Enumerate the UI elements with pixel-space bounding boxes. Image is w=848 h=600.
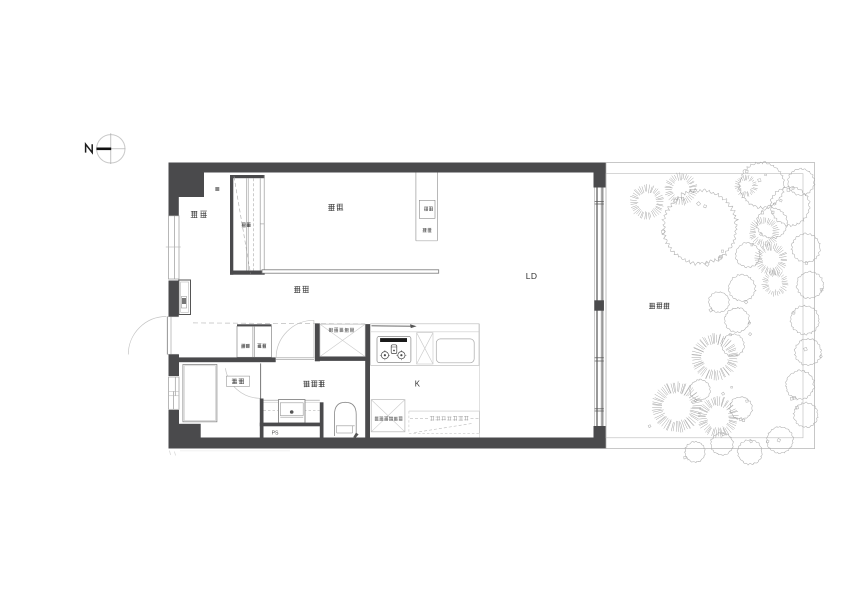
svg-text:K: K	[415, 380, 421, 389]
svg-text:PS: PS	[272, 430, 279, 436]
svg-text:LD: LD	[526, 271, 537, 281]
